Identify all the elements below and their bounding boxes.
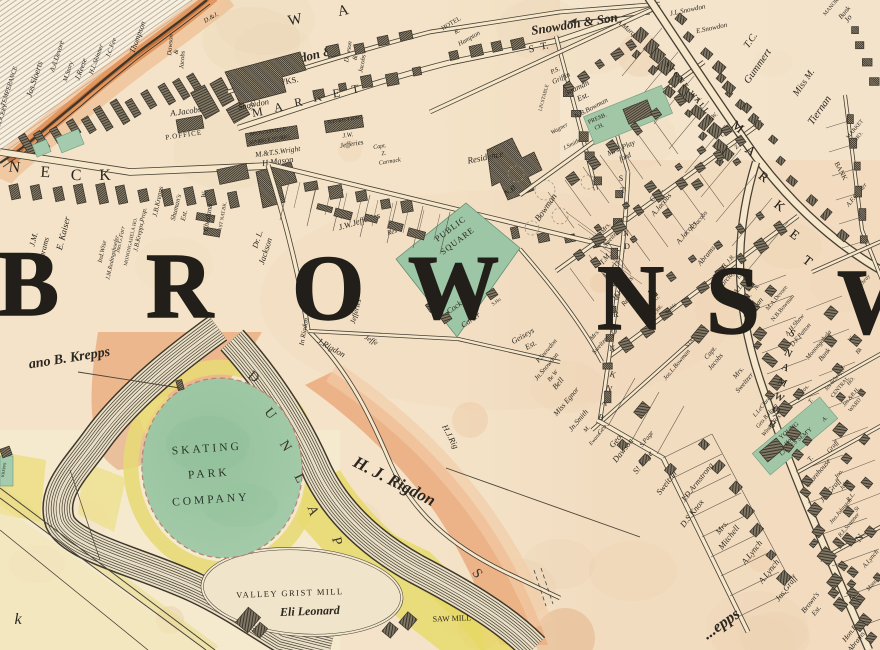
svg-text:W: W: [408, 237, 499, 338]
svg-text:SAW MILL: SAW MILL: [432, 613, 471, 623]
svg-text:N: N: [8, 158, 22, 176]
svg-text:k: k: [14, 611, 22, 628]
svg-text:K: K: [99, 167, 111, 184]
svg-text:C: C: [71, 167, 82, 184]
svg-text:N: N: [597, 247, 664, 350]
svg-text:B: B: [0, 233, 59, 336]
svg-text:O: O: [292, 237, 364, 340]
svg-text:S: S: [619, 174, 623, 183]
svg-text:S: S: [706, 247, 760, 354]
svg-text:W: W: [837, 251, 880, 354]
svg-text:Z.: Z.: [381, 151, 387, 158]
svg-text:E: E: [40, 164, 51, 182]
svg-text:N: N: [623, 229, 629, 238]
svg-text:Eli Leonard: Eli Leonard: [279, 603, 341, 619]
svg-text:R: R: [146, 235, 214, 338]
